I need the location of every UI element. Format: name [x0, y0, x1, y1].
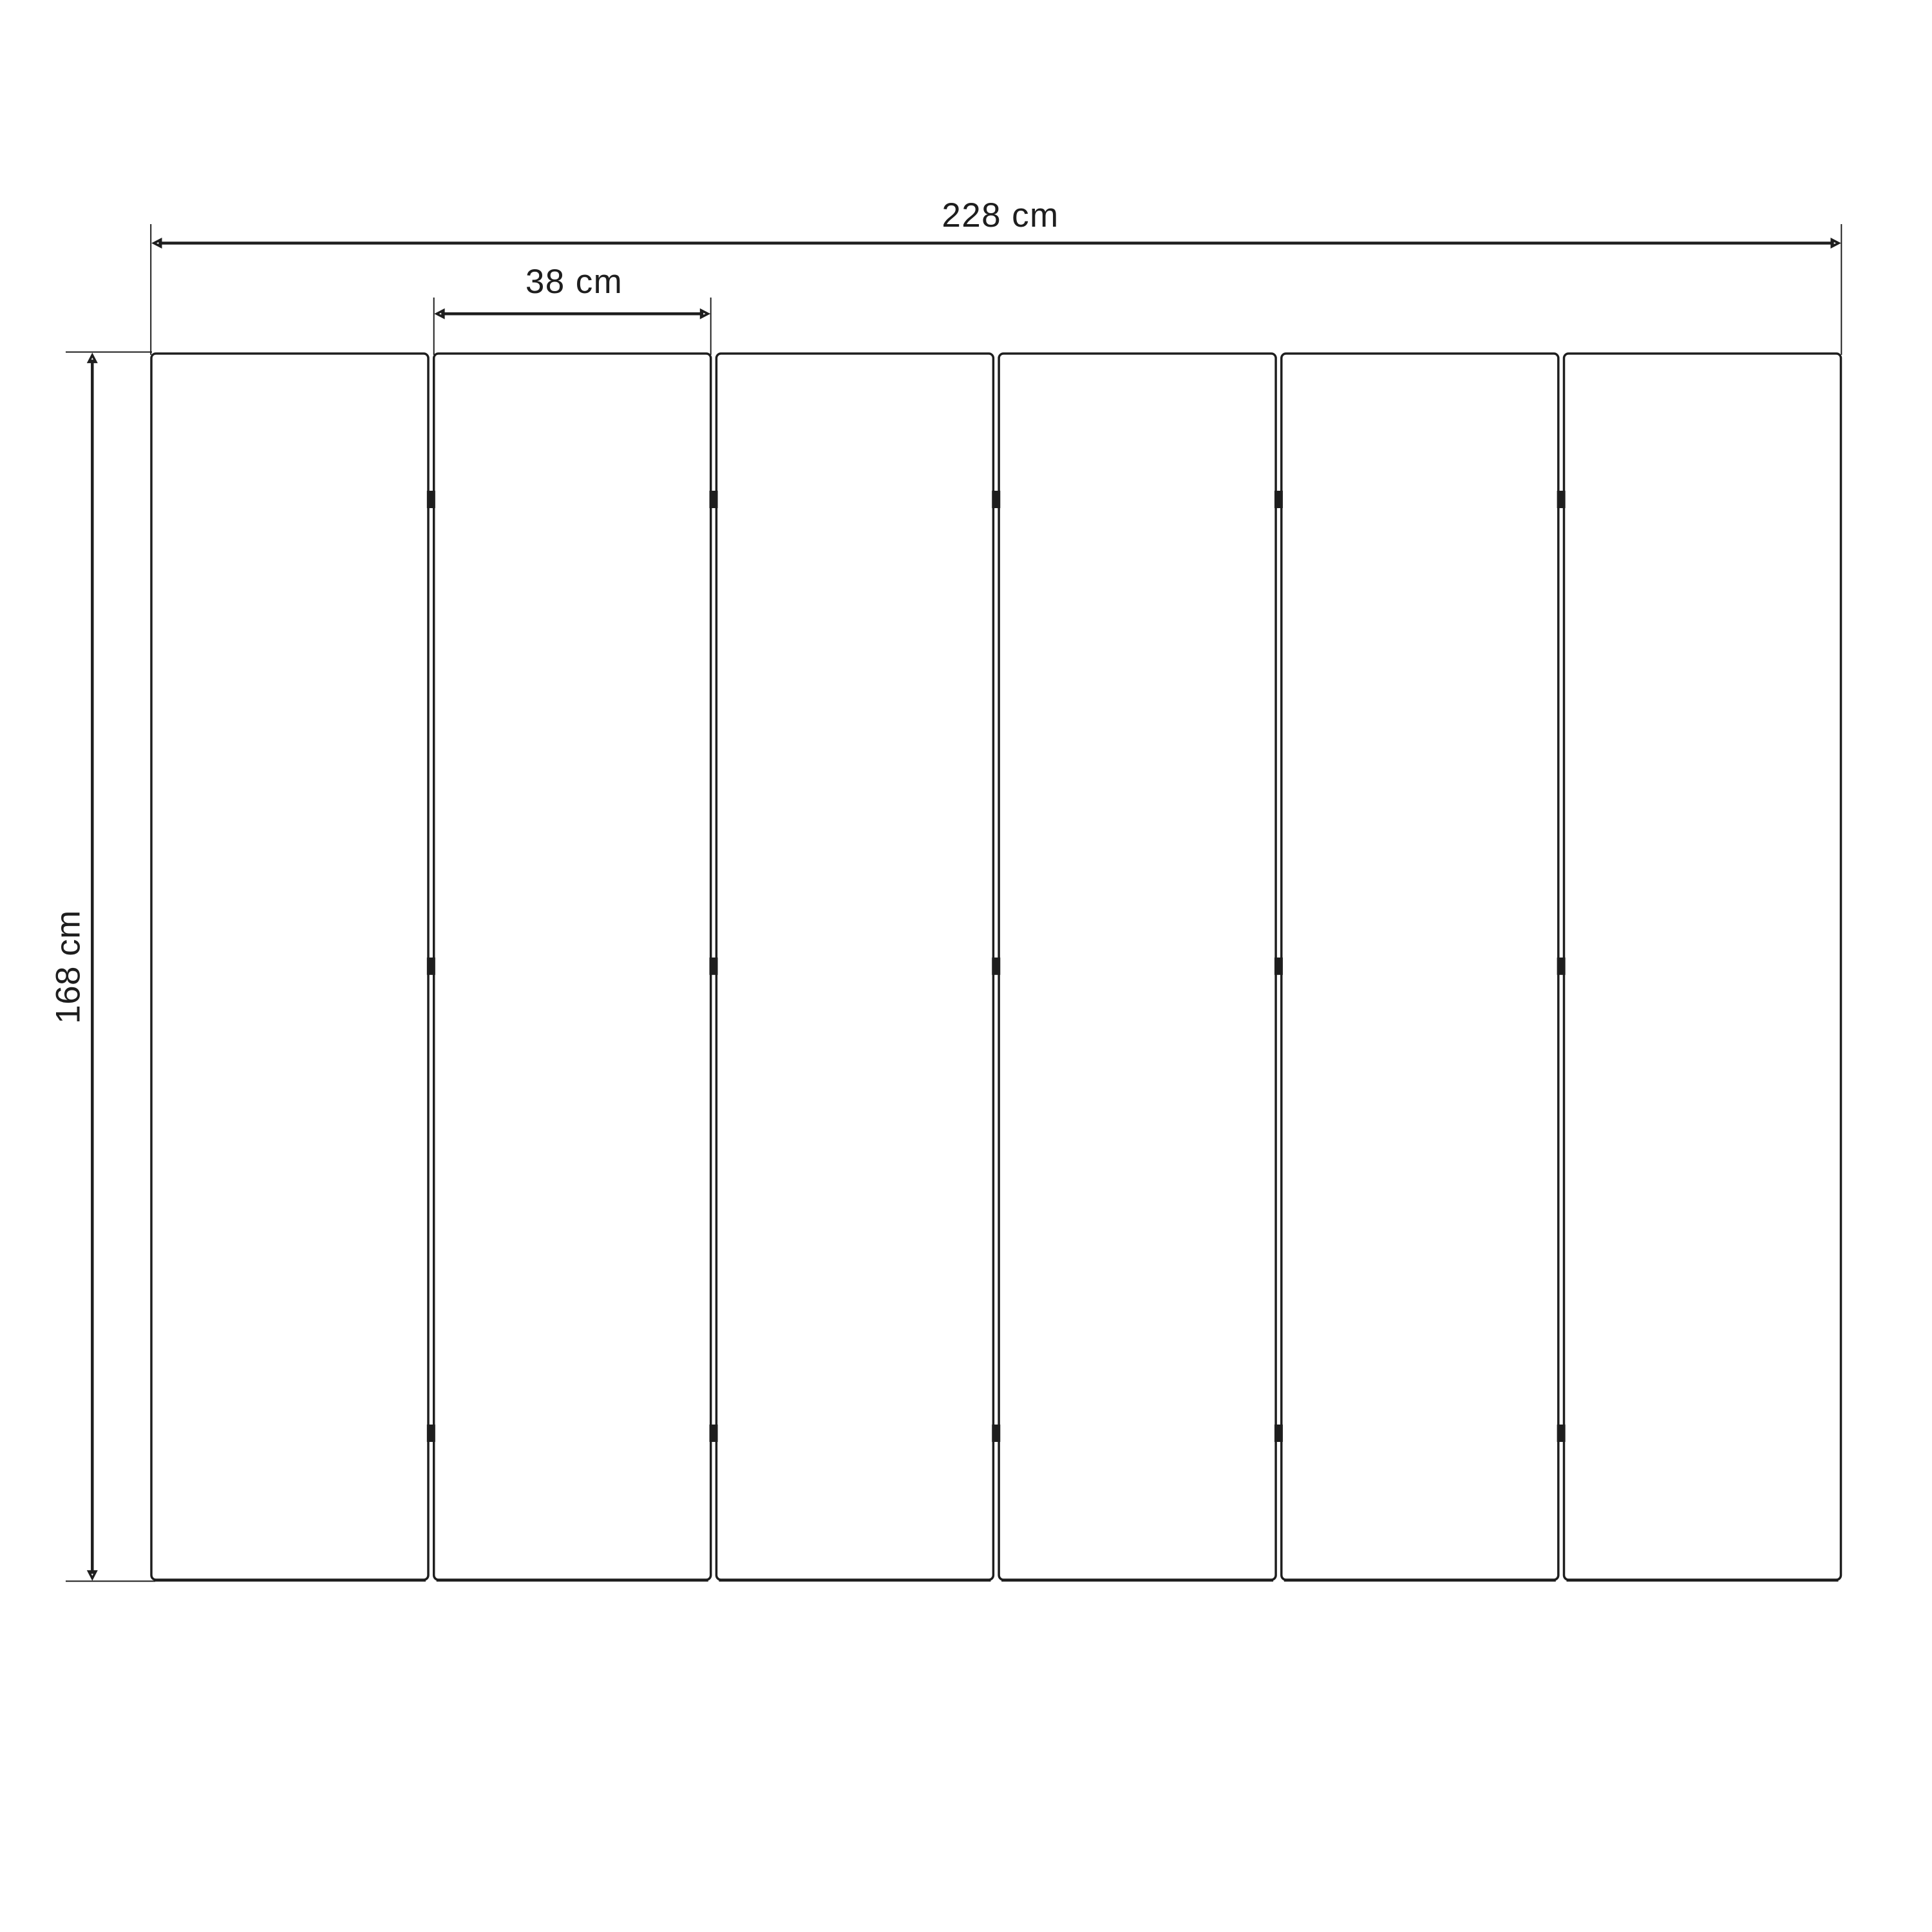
svg-text:168 cm: 168 cm — [50, 910, 88, 1024]
svg-text:228 cm: 228 cm — [942, 196, 1059, 234]
svg-text:38 cm: 38 cm — [526, 263, 623, 301]
